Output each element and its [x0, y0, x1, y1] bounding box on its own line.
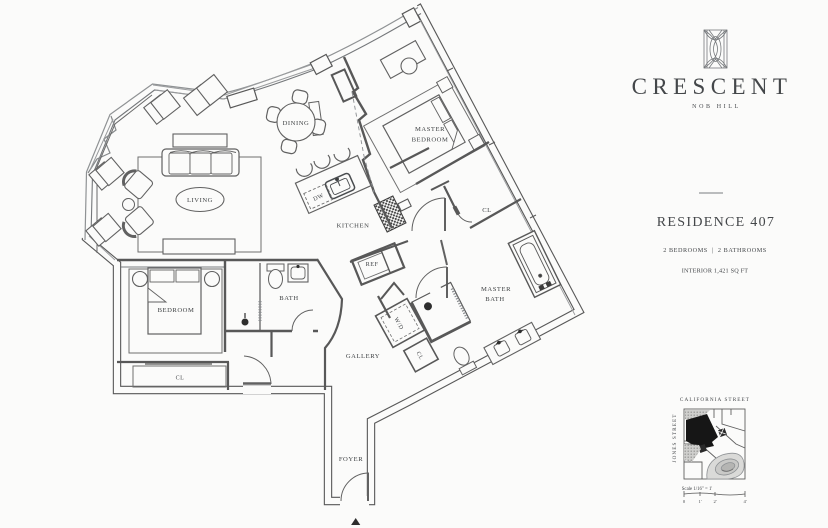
- svg-text:CRESCENT: CRESCENT: [632, 74, 793, 99]
- svg-text:DINING: DINING: [283, 120, 310, 127]
- svg-text:CALIFORNIA STREET: CALIFORNIA STREET: [680, 397, 750, 403]
- svg-text:CL: CL: [176, 376, 185, 382]
- svg-text:Scale 1/16" = 1': Scale 1/16" = 1': [682, 487, 713, 492]
- svg-text:RESIDENCE 407: RESIDENCE 407: [657, 215, 775, 230]
- svg-text:2 BEDROOMS | 2 BATHROOMS: 2 BEDROOMS | 2 BATHROOMS: [663, 247, 767, 254]
- svg-text:KITCHEN: KITCHEN: [337, 223, 370, 230]
- svg-text:1': 1': [698, 499, 701, 504]
- svg-text:BEDROOM: BEDROOM: [158, 307, 195, 314]
- svg-text:LIVING: LIVING: [187, 197, 213, 204]
- svg-text:BATH: BATH: [279, 295, 298, 302]
- svg-text:FOYER: FOYER: [339, 456, 363, 463]
- svg-text:2': 2': [713, 499, 716, 504]
- svg-text:INTERIOR 1,421 SQ FT: INTERIOR 1,421 SQ FT: [682, 268, 749, 275]
- svg-text:4': 4': [743, 499, 746, 504]
- svg-text:BEDROOM: BEDROOM: [412, 137, 449, 144]
- svg-text:CL: CL: [482, 207, 492, 214]
- svg-text:REF: REF: [366, 261, 379, 268]
- svg-text:BATH: BATH: [485, 296, 504, 303]
- svg-text:NOB HILL: NOB HILL: [692, 104, 741, 110]
- svg-text:MASTER: MASTER: [481, 286, 511, 293]
- svg-text:JONES STREET: JONES STREET: [672, 413, 678, 462]
- svg-text:GALLERY: GALLERY: [346, 353, 380, 360]
- svg-text:MASTER: MASTER: [415, 126, 445, 133]
